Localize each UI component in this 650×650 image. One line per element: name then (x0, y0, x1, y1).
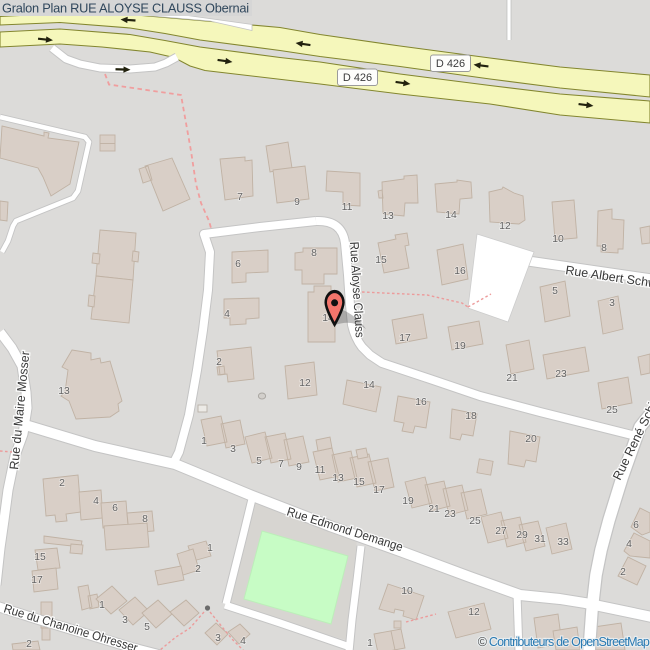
svg-text:6: 6 (112, 503, 118, 514)
svg-text:D 426: D 426 (436, 58, 465, 70)
svg-text:13: 13 (332, 473, 344, 484)
svg-text:10: 10 (401, 586, 413, 597)
svg-text:5: 5 (144, 622, 150, 633)
svg-text:13: 13 (58, 386, 70, 397)
svg-text:4: 4 (93, 496, 99, 507)
svg-text:18: 18 (465, 411, 477, 422)
svg-text:17: 17 (31, 575, 43, 586)
svg-text:1: 1 (99, 600, 105, 611)
svg-text:4: 4 (240, 636, 246, 647)
svg-text:10: 10 (552, 234, 564, 245)
svg-text:9: 9 (296, 462, 302, 473)
svg-text:2: 2 (26, 639, 32, 650)
svg-text:14: 14 (445, 210, 457, 221)
svg-text:1: 1 (367, 638, 373, 649)
svg-text:21: 21 (428, 504, 440, 515)
svg-text:5: 5 (256, 456, 262, 467)
svg-text:16: 16 (415, 397, 427, 408)
svg-text:6: 6 (633, 520, 639, 531)
svg-text:29: 29 (516, 530, 528, 541)
svg-text:5: 5 (552, 286, 558, 297)
svg-text:1: 1 (201, 436, 207, 447)
svg-text:6: 6 (235, 259, 241, 270)
svg-text:3: 3 (215, 633, 221, 644)
svg-text:8: 8 (142, 514, 148, 525)
svg-text:Gralon Plan RUE ALOYSE CLAUSS: Gralon Plan RUE ALOYSE CLAUSS Obernai (2, 1, 249, 16)
svg-text:4: 4 (626, 539, 632, 550)
svg-text:2: 2 (195, 564, 201, 575)
svg-text:33: 33 (557, 537, 569, 548)
svg-text:4: 4 (224, 309, 230, 320)
svg-text:23: 23 (555, 369, 567, 380)
svg-text:2: 2 (620, 567, 626, 578)
svg-text:16: 16 (454, 266, 466, 277)
svg-text:1: 1 (207, 543, 213, 554)
svg-text:11: 11 (342, 202, 353, 213)
svg-text:3: 3 (609, 298, 615, 309)
svg-text:23: 23 (444, 509, 456, 520)
svg-text:2: 2 (59, 478, 65, 489)
svg-text:15: 15 (34, 552, 46, 563)
svg-text:12: 12 (499, 221, 511, 232)
svg-text:15: 15 (375, 255, 387, 266)
svg-text:7: 7 (278, 459, 284, 470)
svg-text:20: 20 (525, 434, 537, 445)
svg-text:12: 12 (468, 607, 480, 618)
svg-text:© Contributeurs de OpenStreetM: © Contributeurs de OpenStreetMap (478, 635, 650, 649)
svg-text:31: 31 (534, 534, 546, 545)
svg-text:21: 21 (506, 373, 518, 384)
svg-text:3: 3 (230, 444, 236, 455)
svg-text:25: 25 (469, 516, 481, 527)
svg-text:12: 12 (299, 378, 311, 389)
svg-text:8: 8 (601, 243, 607, 254)
svg-text:17: 17 (399, 333, 411, 344)
svg-text:2: 2 (216, 357, 222, 368)
svg-text:14: 14 (363, 380, 375, 391)
svg-text:7: 7 (237, 192, 243, 203)
svg-text:9: 9 (294, 197, 300, 208)
svg-text:11: 11 (315, 465, 326, 476)
svg-text:8: 8 (311, 248, 317, 259)
svg-text:17: 17 (373, 485, 385, 496)
svg-text:15: 15 (353, 477, 365, 488)
svg-text:19: 19 (402, 496, 414, 507)
svg-text:27: 27 (495, 526, 507, 537)
svg-text:13: 13 (382, 211, 394, 222)
svg-text:25: 25 (606, 405, 618, 416)
svg-text:D 426: D 426 (343, 72, 372, 84)
svg-text:3: 3 (122, 615, 128, 626)
svg-text:19: 19 (454, 341, 466, 352)
